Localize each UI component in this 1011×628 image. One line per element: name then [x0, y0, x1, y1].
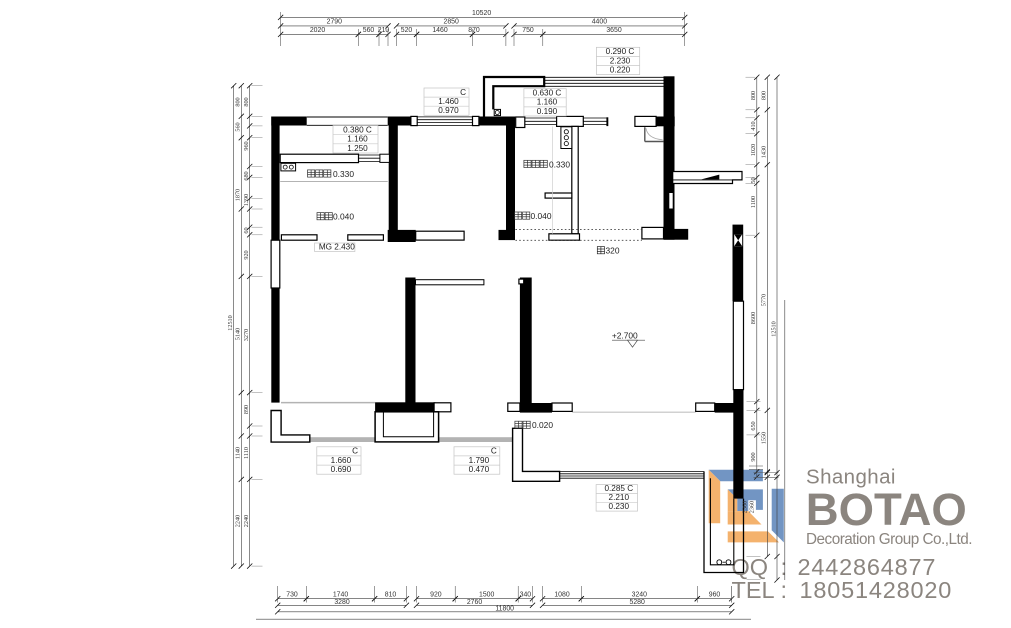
svg-text:+2.700: +2.700	[612, 331, 638, 341]
svg-text:0.220: 0.220	[610, 65, 631, 74]
svg-text:BOTAO: BOTAO	[806, 484, 967, 535]
svg-text:800: 800	[761, 91, 768, 100]
svg-text:C: C	[491, 447, 497, 456]
svg-text:0.290 C: 0.290 C	[606, 47, 635, 56]
svg-text:5280: 5280	[630, 599, 645, 606]
svg-text:0.970: 0.970	[438, 106, 459, 115]
svg-text:2760: 2760	[467, 599, 482, 606]
svg-text:10520: 10520	[472, 10, 491, 17]
svg-text:0.285 C: 0.285 C	[604, 484, 633, 493]
svg-text:800: 800	[243, 97, 250, 106]
svg-text:800: 800	[750, 91, 757, 100]
svg-text:0.230: 0.230	[609, 502, 630, 511]
svg-text:960: 960	[709, 591, 721, 598]
svg-text:800: 800	[235, 97, 242, 106]
svg-text:C: C	[352, 447, 358, 456]
svg-text:0.380 C: 0.380 C	[343, 126, 372, 135]
svg-text:8600: 8600	[750, 312, 757, 324]
svg-text:5770: 5770	[761, 294, 768, 306]
svg-text:560: 560	[363, 27, 375, 34]
svg-text:2790: 2790	[327, 19, 342, 26]
svg-text:12510: 12510	[770, 321, 777, 336]
svg-text:1080: 1080	[554, 591, 569, 598]
svg-text:Decoration Group Co.,Ltd.: Decoration Group Co.,Ltd.	[806, 531, 972, 548]
svg-text:1140: 1140	[235, 447, 242, 459]
svg-text:12510: 12510	[227, 315, 234, 330]
svg-text:900: 900	[750, 452, 757, 461]
svg-text:1740: 1740	[333, 591, 348, 598]
svg-text:650: 650	[750, 421, 757, 430]
svg-text:11800: 11800	[495, 605, 514, 612]
svg-text:750: 750	[522, 27, 534, 34]
svg-text::: :	[781, 577, 788, 603]
svg-text:1.460: 1.460	[438, 97, 459, 106]
svg-text:960: 960	[243, 141, 250, 150]
svg-text:410: 410	[750, 121, 757, 130]
svg-text:1.160: 1.160	[347, 135, 368, 144]
svg-text:920: 920	[430, 591, 442, 598]
svg-text:810: 810	[385, 591, 397, 598]
svg-text:3280: 3280	[334, 599, 349, 606]
svg-text:3240: 3240	[632, 591, 647, 598]
svg-text:0.330: 0.330	[549, 159, 570, 169]
svg-text:0.630 C: 0.630 C	[533, 89, 562, 98]
svg-text:2.230: 2.230	[610, 56, 631, 65]
svg-text:0.190: 0.190	[537, 107, 558, 116]
svg-text:870: 870	[468, 27, 480, 34]
svg-text:C: C	[460, 88, 466, 97]
svg-text:1390: 1390	[243, 194, 250, 206]
svg-text:1500: 1500	[479, 591, 494, 598]
svg-text:0.690: 0.690	[331, 465, 352, 474]
svg-text:730: 730	[286, 591, 298, 598]
svg-text:520: 520	[401, 27, 413, 34]
svg-text:1.160: 1.160	[537, 98, 558, 107]
svg-text:920: 920	[243, 250, 250, 259]
svg-text:2360: 2360	[749, 501, 756, 513]
svg-text:320: 320	[606, 245, 620, 255]
svg-text:1110: 1110	[243, 447, 250, 459]
svg-text:18051428020: 18051428020	[800, 577, 953, 603]
svg-text:1020: 1020	[750, 144, 757, 156]
svg-text:1.250: 1.250	[347, 144, 368, 153]
svg-text:2240: 2240	[243, 515, 250, 527]
svg-text:MG 2.430: MG 2.430	[319, 242, 355, 251]
svg-text:1100: 1100	[750, 196, 757, 208]
svg-text:0.470: 0.470	[469, 465, 490, 474]
svg-text:210: 210	[378, 27, 390, 34]
svg-text:340: 340	[520, 591, 532, 598]
svg-text:4400: 4400	[592, 19, 607, 26]
svg-text:2.210: 2.210	[609, 493, 630, 502]
svg-text:1550: 1550	[761, 432, 768, 444]
svg-text:50: 50	[750, 177, 757, 183]
svg-text:2360: 2360	[742, 501, 749, 513]
svg-text:2240: 2240	[235, 515, 242, 527]
svg-text:2020: 2020	[310, 27, 325, 34]
svg-text:60: 60	[243, 227, 250, 233]
svg-text:3650: 3650	[606, 27, 621, 34]
svg-text:1870: 1870	[235, 189, 242, 201]
svg-text:1460: 1460	[432, 27, 447, 34]
svg-text:TEL: TEL	[732, 577, 775, 603]
svg-text:3270: 3270	[243, 329, 250, 341]
svg-text:2850: 2850	[444, 19, 459, 26]
svg-text:0.040: 0.040	[531, 211, 552, 221]
svg-text:5140: 5140	[235, 328, 242, 340]
svg-text:1.790: 1.790	[469, 456, 490, 465]
svg-text:0.040: 0.040	[333, 212, 354, 222]
svg-text:0.020: 0.020	[532, 420, 553, 430]
svg-text:680: 680	[243, 171, 250, 180]
svg-text:560: 560	[235, 122, 242, 131]
svg-text:890: 890	[243, 405, 250, 414]
svg-text:0.330: 0.330	[333, 169, 354, 179]
svg-text:1.660: 1.660	[331, 456, 352, 465]
svg-text:1430: 1430	[761, 146, 768, 158]
